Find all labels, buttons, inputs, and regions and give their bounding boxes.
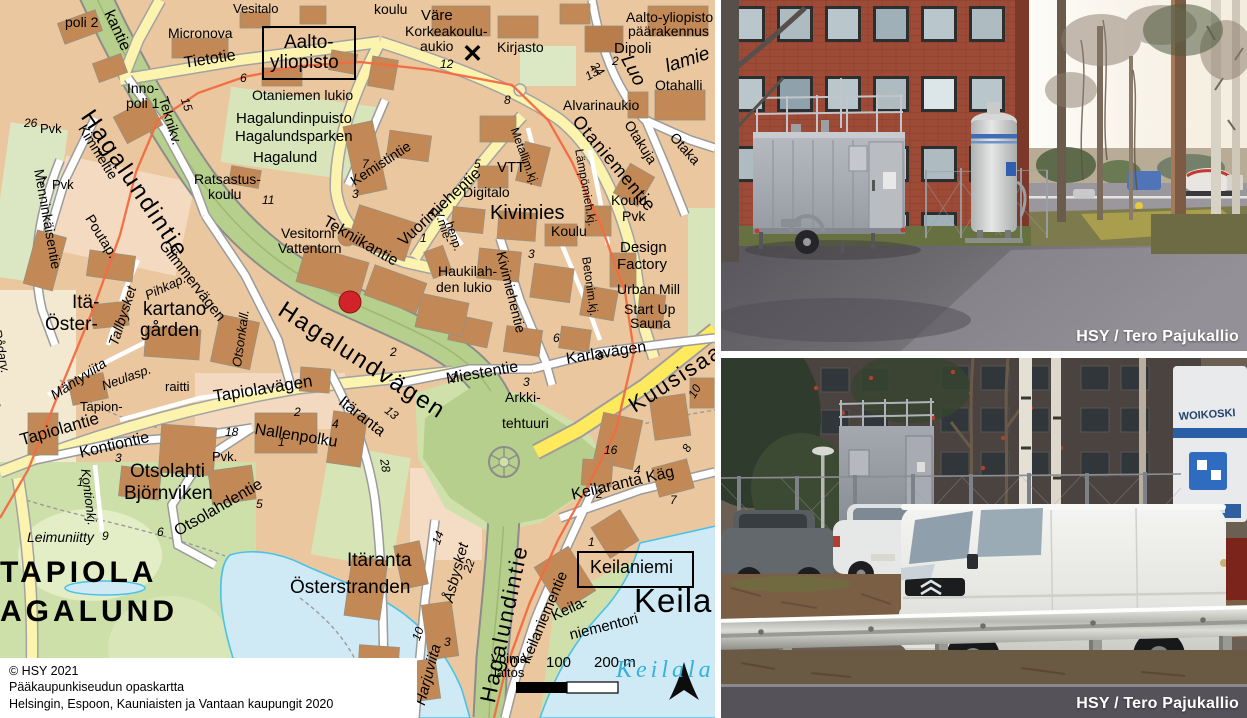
attribution-line: Pääkaupunkiseudun opaskartta (9, 679, 407, 696)
map-label: Keilaranta Käg (570, 464, 676, 504)
map-label: 2 (596, 488, 603, 500)
map-label: 4 (428, 206, 435, 218)
map-label: aukio (420, 39, 453, 53)
map-panel[interactable]: poli 2VesitalokantieMicronovaTietotie6Aa… (0, 0, 715, 718)
map-label: Koulu (551, 224, 587, 238)
photo-top-graphic (721, 0, 1247, 351)
map-label: den lukio (436, 280, 492, 294)
map-label: Vattentorn (278, 241, 342, 255)
map-label: 3 (528, 248, 535, 260)
map-label: Pihkap. (143, 272, 188, 302)
map-label: 14 (430, 529, 446, 546)
map-label: 12 (440, 58, 453, 70)
map-label: 1 (278, 436, 285, 448)
map-label: Sauna (630, 316, 670, 330)
map-label: Leimuniitty (27, 530, 94, 544)
map-label: Design (620, 240, 667, 255)
map-label: tehtuuri (502, 416, 549, 430)
map-label: Kivimies (490, 203, 564, 223)
map-label: Otsolahti (130, 462, 205, 481)
attribution-line: © HSY 2021 (9, 663, 407, 680)
map-label: 3 (444, 636, 451, 648)
map-label: Björnviken (124, 484, 213, 503)
map-label: 26 (24, 117, 37, 129)
map-label: Pvk (52, 178, 74, 191)
photo-station-building: HSY / Tero Pajukallio (721, 0, 1247, 351)
map-label: TAPIOLA (0, 558, 157, 589)
map-label: 11 (262, 194, 274, 206)
map-label: 5 (474, 158, 481, 170)
map-label: 2 (390, 346, 397, 358)
map-label: 8 (504, 94, 511, 106)
map-label: 4 (634, 464, 641, 476)
map-label: Tietotie (183, 48, 237, 72)
map-label: 6 (240, 72, 247, 84)
map-label: 1 (588, 536, 595, 548)
map-label: Micronova (168, 26, 233, 40)
map-label: lamie (663, 44, 712, 76)
map-label: 9 (102, 530, 109, 542)
map-label: Koulu (611, 193, 647, 207)
screenshot-root: poli 2VesitalokantieMicronovaTietotie6Aa… (0, 0, 1247, 718)
map-label: Kemistintie (348, 139, 413, 188)
map-label: koulu (374, 2, 407, 16)
map-label: 100 (546, 655, 571, 670)
map-label: Betonim.kj. (580, 256, 600, 316)
map-label: Metallim.kj. (509, 126, 541, 187)
photo-credit: HSY / Tero Pajukallio (1076, 695, 1239, 713)
map-label-box (262, 26, 356, 80)
map-label: 28 (378, 458, 392, 473)
map-label: 5 (256, 498, 263, 510)
map-label: Hagalundsparken (235, 129, 353, 144)
map-label: Hagalund (253, 150, 317, 165)
map-label: 3 (115, 452, 122, 464)
map-label: Itäranta (347, 551, 411, 570)
map-label: Tapiolavägen (212, 372, 314, 405)
map-label: Poutap. (83, 212, 121, 260)
map-label: 1 (420, 232, 427, 244)
map-label: 2 (294, 406, 301, 418)
map-label: 7 (362, 158, 369, 170)
map-label: henp. (443, 220, 464, 252)
map-label: Rådarv. (0, 328, 12, 374)
map-label: kartano (143, 300, 206, 319)
map-label: koulu (208, 187, 241, 201)
map-label: Otahalli (655, 78, 702, 92)
map-label: 10 (686, 382, 703, 400)
map-label: 18 (225, 426, 238, 438)
map-label: Alvarinaukio (563, 98, 639, 112)
map-label: Pvk. (212, 450, 237, 463)
map-label: Otaka (667, 130, 703, 167)
photo-credit: HSY / Tero Pajukallio (1076, 328, 1239, 346)
map-label: 7 (670, 494, 677, 506)
map-label: Inno- (127, 81, 159, 95)
map-label: Luo (617, 52, 649, 89)
map-label: niementori (568, 611, 640, 643)
map-label: Arkki- (505, 390, 541, 404)
map-label: Urban Mill (617, 282, 680, 296)
map-label: 8 (680, 442, 694, 454)
map-label: 3 (523, 376, 530, 388)
map-label: Vesitalo (233, 2, 279, 15)
map-label: poli 2 (65, 15, 98, 29)
map-label: Hagalundinpuisto (236, 111, 352, 126)
map-label: Itäranta (335, 394, 388, 440)
map-label: 2 (612, 55, 619, 67)
map-label: Korkeakoulu- (405, 24, 488, 38)
map-label: 6 (553, 332, 560, 344)
map-label: 13 (382, 404, 400, 422)
map-label-box (577, 551, 694, 588)
map-label: 3 (352, 188, 359, 200)
map-label: Kirjasto (497, 40, 544, 54)
map-label: gården (140, 321, 199, 340)
map-attribution: © HSY 2021 Pääkaupunkiseudun opaskartta … (0, 658, 417, 718)
map-label: Åsbysket (441, 541, 472, 604)
map-label: 15 (179, 96, 195, 113)
map-label: 10 (410, 625, 426, 642)
map-label: Pvk (622, 209, 645, 223)
map-label: Hagalundintie (477, 543, 532, 705)
map-label: Keila (634, 584, 712, 618)
map-label: Kontionkj. (79, 468, 99, 526)
map-label: Kivimiehentie (494, 250, 528, 334)
map-label: ✕ (462, 42, 483, 68)
gas-truck: WOIKOSKI (1173, 366, 1247, 522)
map-label: poli 1 (126, 96, 159, 110)
map-label: Harjuviita (413, 643, 444, 707)
map-label: Österstranden (290, 578, 410, 597)
map-label: Ratsastus- (194, 172, 261, 186)
photo-bottom-graphic: WOIKOSKI (721, 358, 1247, 718)
map-label: 0 (510, 655, 518, 670)
map-label: Tallbysket (106, 284, 139, 347)
map-label: Otaniemen lukio (252, 88, 353, 102)
map-labels: poli 2VesitalokantieMicronovaTietotie6Aa… (0, 0, 715, 718)
map-label: päärakennus (628, 24, 709, 38)
map-label: Otakuja (622, 118, 660, 166)
attribution-line: Helsingin, Espoon, Kauniaisten ja Vantaa… (9, 696, 407, 713)
map-label: Digitalo (463, 185, 510, 199)
map-label: Haukilah- (438, 264, 497, 278)
map-label: 6 (157, 526, 164, 538)
map-label: kantie (100, 8, 133, 54)
gas-tank (965, 102, 1025, 243)
map-label: AGALUND (0, 597, 178, 628)
map-label: Pvk (40, 122, 62, 135)
map-label: Miestentie (445, 359, 520, 388)
map-label: 16 (604, 444, 617, 456)
map-label: Nallenpolku (253, 422, 338, 451)
red-vehicle (1226, 538, 1247, 600)
map-label: Väre (421, 8, 453, 23)
map-label: Lämpömieh.kj. (573, 148, 599, 227)
map-label: raitti (165, 380, 190, 393)
map-label: Karlavägen (565, 339, 648, 368)
map-label: op. (0, 392, 6, 414)
map-label: Itä- (72, 293, 99, 312)
map-label: 4 (332, 418, 339, 430)
map-label: Factory (617, 257, 667, 272)
map-label: Otsonkall. (230, 309, 251, 368)
map-label: Öster- (45, 315, 98, 334)
photo-station-roadside: WOIKOSKI (721, 358, 1247, 718)
map-label: Keilalahti (616, 658, 715, 682)
